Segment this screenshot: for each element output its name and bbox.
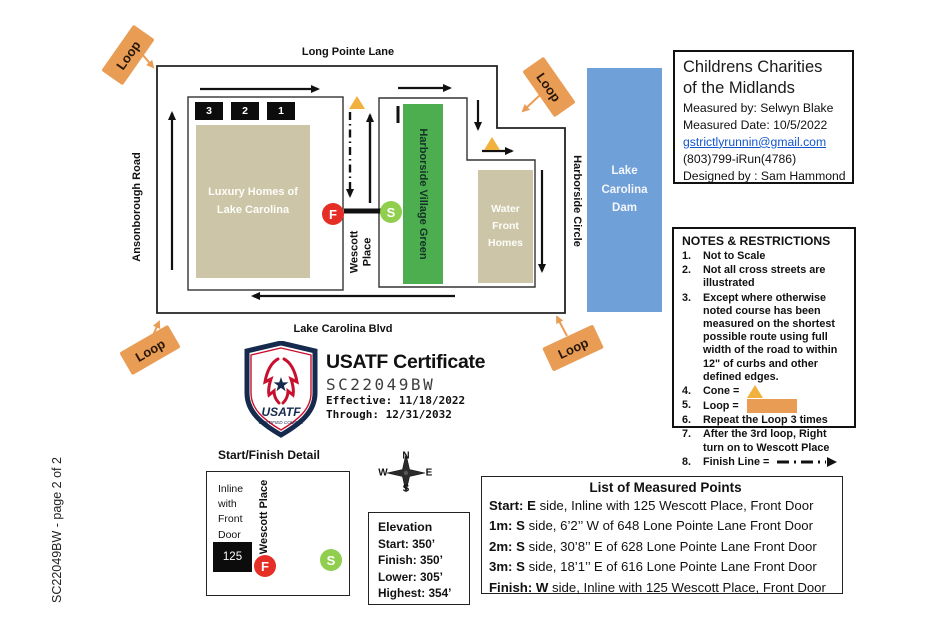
compass-s: S [403, 484, 410, 495]
compass-e: E [426, 468, 433, 479]
note-item: 2.Not all cross streets are illustrated [682, 264, 848, 290]
detail-street-label: Wescott Place [258, 480, 270, 554]
measured-date: Measured Date: 10/5/2022 [683, 117, 844, 134]
water-front-homes-label: Water Front Homes [484, 201, 528, 251]
detail-start-marker: S [320, 549, 342, 571]
water-front-homes-block: Water Front Homes [478, 170, 533, 283]
notes-restrictions-box: NOTES & RESTRICTIONS 1.Not to Scale 2.No… [672, 227, 856, 428]
measured-points-title: List of Measured Points [489, 480, 842, 495]
lake-carolina-dam-block: Lake Carolina Dam [587, 68, 662, 312]
detail-finish-marker: F [254, 555, 276, 577]
measured-points-box: List of Measured Points Start: E side, I… [481, 476, 843, 594]
cone-legend-icon [747, 385, 763, 398]
charity-title-line1: Childrens Charities [683, 57, 844, 78]
measured-point-row: 1m: S side, 6’2’’ W of 648 Lone Pointe L… [489, 516, 842, 536]
street-label-harborside-circle: Harborside Circle [571, 155, 583, 247]
loop-arrow-top-right [523, 95, 540, 111]
note-item: 3.Except where otherwise noted course ha… [682, 292, 848, 384]
measured-point-row: Start: E side, Inline with 125 Wescott P… [489, 496, 842, 516]
note-item-finish-line: 8. Finish Line = [682, 456, 848, 469]
luxury-homes-block: Luxury Homes of Lake Carolina [196, 125, 310, 278]
usatf-shield-logo: USATF CERTIFIED COURSE [244, 341, 318, 438]
map-finish-marker: F [322, 203, 344, 225]
detail-house-number-box: 125 [213, 542, 252, 572]
certificate-page: Luxury Homes of Lake Carolina Harborside… [0, 0, 939, 640]
lake-carolina-dam-label: Lake Carolina Dam [597, 162, 653, 217]
village-green-block: Harborside Village Green [403, 104, 443, 284]
note-item: 6.Repeat the Loop 3 times [682, 414, 848, 427]
loop-count-box-1: 1 [267, 102, 295, 120]
charity-info-box: Childrens Charities of the Midlands Meas… [673, 50, 854, 184]
loop-arrow-top-left [142, 54, 153, 67]
street-label-ansonborough-road: Ansonborough Road [131, 152, 143, 261]
cone-wescott [349, 96, 365, 109]
measurer-email-link[interactable]: gstrictlyrunnin@gmail.com [683, 135, 826, 149]
measured-point-row: 2m: S side, 30’8’’ E of 628 Lone Pointe … [489, 537, 842, 557]
cone-notch [484, 137, 500, 150]
elevation-start: Start: 350’ [378, 536, 469, 553]
notes-title: NOTES & RESTRICTIONS [682, 234, 848, 248]
loop-arrow-bottom-right [557, 317, 567, 336]
finish-line-legend-icon [776, 456, 838, 468]
village-green-label: Harborside Village Green [417, 128, 429, 259]
street-label-lake-carolina-blvd: Lake Carolina Blvd [263, 323, 423, 335]
measured-by: Measured by: Selwyn Blake [683, 100, 844, 117]
compass-w: W [378, 468, 387, 479]
measurer-phone: (803)799-iRun(4786) [683, 151, 844, 168]
usatf-shield-name: USATF [261, 405, 301, 419]
page-label: SC22049BW - page 2 of 2 [50, 457, 64, 603]
street-label-long-pointe-lane: Long Pointe Lane [248, 46, 448, 58]
certificate-heading: USATF Certificate [326, 351, 485, 374]
map-start-marker: S [380, 201, 402, 223]
certificate-effective-date: Effective: 11/18/2022 [326, 394, 465, 407]
loop-legend-icon [747, 399, 797, 413]
elevation-lower: Lower: 305’ [378, 569, 469, 586]
elevation-finish: Finish: 350’ [378, 552, 469, 569]
measured-point-row: Finish: W side, Inline with 125 Wescott … [489, 578, 842, 598]
street-label-wescott-place: Wescott Place [348, 220, 373, 284]
luxury-homes-label: Luxury Homes of Lake Carolina [201, 184, 305, 218]
note-item-loop: 5. Loop = [682, 399, 848, 413]
designed-by: Designed by : Sam Hammond [683, 168, 844, 185]
note-item: 7.After the 3rd loop, Right turn on to W… [682, 428, 848, 454]
certificate-number: SC22049BW [326, 375, 435, 394]
loop-count-box-3: 3 [195, 102, 223, 120]
elevation-box: Elevation Start: 350’ Finish: 350’ Lower… [368, 512, 470, 605]
measured-point-row: 3m: S side, 18’1’’ E of 616 Lone Pointe … [489, 557, 842, 577]
loop-count-box-2: 2 [231, 102, 259, 120]
note-item: 1.Not to Scale [682, 250, 848, 263]
usatf-shield-subtitle: CERTIFIED COURSE [258, 420, 304, 425]
elevation-title: Elevation [378, 519, 469, 536]
elevation-highest: Highest: 354’ [378, 585, 469, 602]
certificate-through-date: Through: 12/31/2032 [326, 408, 452, 421]
charity-title-line2: of the Midlands [683, 78, 844, 99]
compass-n: N [402, 451, 409, 462]
note-item-cone: 4. Cone = [682, 385, 848, 398]
detail-title: Start/Finish Detail [199, 448, 339, 462]
